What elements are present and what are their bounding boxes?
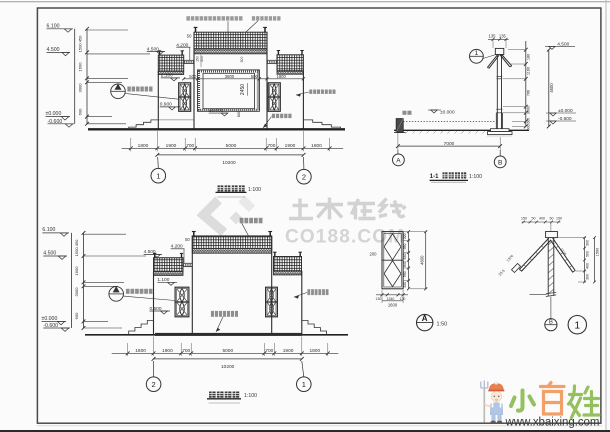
svg-text:4600: 4600 [549,83,554,93]
svg-text:600,600: 600,600 [527,118,531,131]
svg-text:1160: 1160 [527,67,531,75]
svg-text:5000: 5000 [222,348,233,354]
svg-text:1: 1 [575,320,581,331]
svg-text:1900: 1900 [166,143,177,149]
svg-text:130: 130 [376,297,382,301]
svg-text:700: 700 [182,348,190,354]
svg-text:1900: 1900 [283,348,294,354]
svg-text:600: 600 [74,312,79,319]
svg-text:1600: 1600 [74,266,79,276]
svg-text:±0.000: ±0.000 [440,109,455,115]
svg-text:700: 700 [265,348,273,354]
svg-text:2: 2 [152,380,156,389]
svg-text:150: 150 [556,216,562,220]
svg-text:2450: 2450 [240,84,246,95]
svg-text:320: 320 [403,282,407,288]
svg-text:1900: 1900 [285,143,296,149]
svg-text:300: 300 [586,274,590,280]
svg-text:500: 500 [189,74,197,79]
svg-text:1500 450: 1500 450 [78,35,83,52]
svg-text:766: 766 [527,90,531,96]
svg-text:4600: 4600 [419,255,424,265]
svg-text:10200: 10200 [221,364,235,370]
svg-text:5000: 5000 [226,143,237,149]
svg-text:1500: 1500 [596,248,600,256]
svg-text:150: 150 [521,216,527,220]
svg-text:1800: 1800 [135,348,146,354]
svg-text:B: B [498,159,502,166]
svg-text:1600: 1600 [78,62,83,72]
svg-text:1:100: 1:100 [469,174,482,180]
svg-text:135: 135 [489,34,497,39]
svg-text:500: 500 [251,74,259,79]
svg-text:1500 450: 1500 450 [74,239,79,256]
svg-text:600: 600 [78,108,83,115]
svg-text:1: 1 [475,50,479,57]
svg-text:640: 640 [403,253,407,259]
svg-text:3000: 3000 [74,287,79,297]
svg-text:50: 50 [187,34,192,39]
svg-text:1-1: 1-1 [430,174,439,180]
svg-text:700: 700 [186,143,194,149]
svg-text:50: 50 [532,216,536,220]
svg-text:6.100: 6.100 [47,23,60,29]
svg-text:6.100: 6.100 [42,227,55,233]
svg-text:1800: 1800 [138,143,149,149]
svg-text:1800: 1800 [309,348,320,354]
svg-text:50: 50 [550,216,554,220]
svg-text:400: 400 [539,216,545,220]
svg-text:300: 300 [200,56,204,62]
svg-text:1: 1 [156,172,160,181]
svg-text:www.xbaixing.com: www.xbaixing.com [505,417,600,429]
svg-text:1:100: 1:100 [244,393,257,399]
svg-text:300: 300 [586,240,590,246]
svg-text:3800: 3800 [225,74,235,79]
svg-text:1800: 1800 [277,74,287,79]
svg-text:50: 50 [185,237,190,242]
svg-text:1900: 1900 [162,348,173,354]
svg-text:400: 400 [586,263,590,269]
svg-text:10200: 10200 [222,160,236,166]
svg-text:4.500: 4.500 [47,47,60,53]
svg-text:1:100: 1:100 [248,187,261,193]
svg-text:B: B [549,319,553,325]
svg-text:700: 700 [267,143,275,149]
svg-text:7000: 7000 [444,141,455,147]
svg-text:300: 300 [240,57,244,63]
svg-text:A: A [422,314,428,323]
svg-text:320: 320 [403,233,407,239]
svg-text:1:50: 1:50 [437,321,448,327]
svg-text:A: A [396,157,401,164]
svg-text:3000: 3000 [527,106,531,114]
svg-text:950: 950 [403,271,407,277]
svg-text:180: 180 [527,54,531,60]
svg-text:135: 135 [499,34,507,39]
svg-text:1800: 1800 [311,143,322,149]
svg-text:4.500: 4.500 [43,251,56,257]
svg-text:200: 200 [370,251,378,256]
svg-text:640: 640 [403,261,407,267]
svg-text:1600: 1600 [388,303,398,308]
svg-text:±0.000: ±0.000 [42,316,58,322]
svg-text:500: 500 [586,251,590,257]
svg-text:600: 600 [237,111,241,117]
svg-text:3000: 3000 [78,83,83,93]
svg-text:2: 2 [302,173,306,182]
svg-text:950: 950 [403,244,407,250]
svg-text:1: 1 [302,380,306,389]
